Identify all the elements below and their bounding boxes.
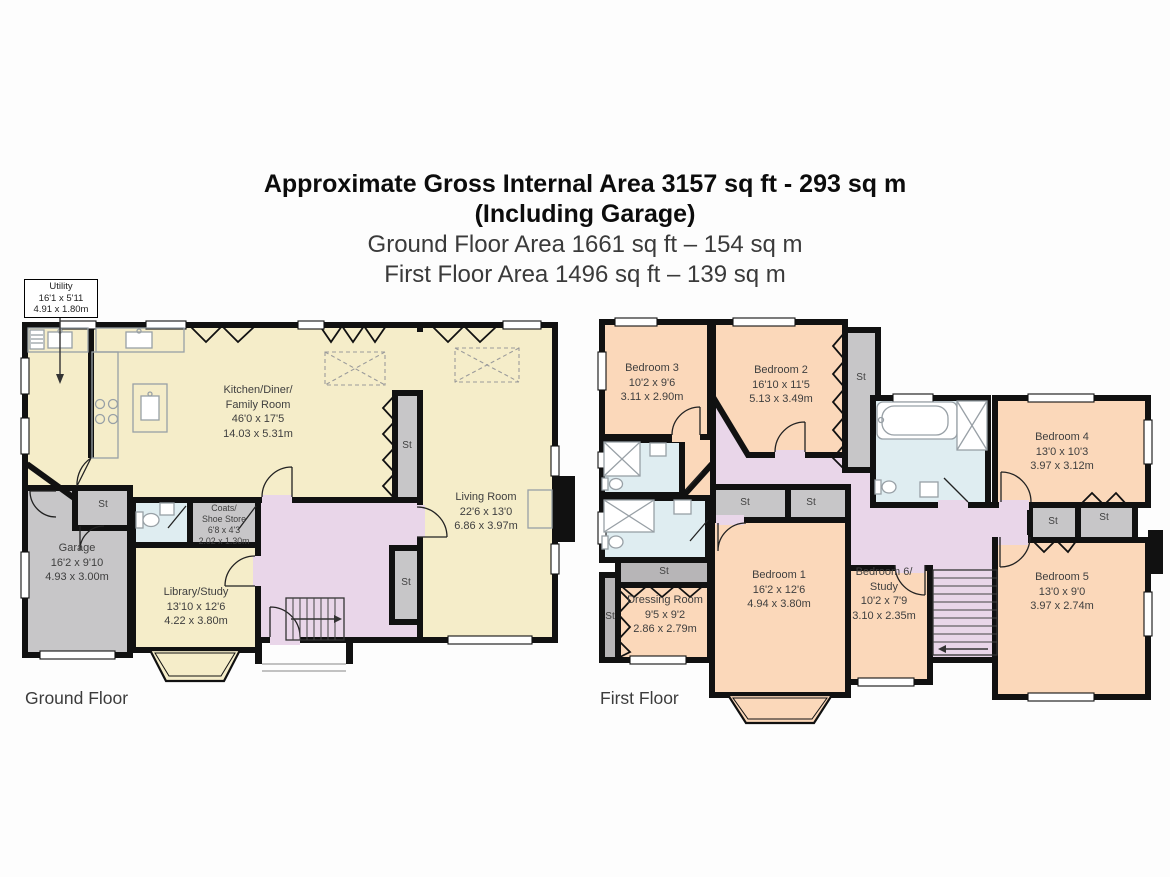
chimney [1148, 530, 1163, 574]
garage-label: Garage 16'2 x 9'10 4.93 x 3.00m [45, 541, 109, 585]
bath-icon [877, 402, 957, 439]
living-room-label: Living Room 22'6 x 13'0 6.86 x 3.97m [454, 490, 518, 534]
toilet-icon [875, 480, 896, 494]
window [1028, 693, 1094, 701]
window [21, 552, 29, 598]
window [551, 446, 559, 476]
storage-label: St [806, 498, 815, 508]
porch [255, 640, 353, 671]
storage-label: St [1099, 513, 1108, 523]
toilet-icon [602, 536, 623, 549]
library-study-label: Library/Study 13'10 x 12'6 4.22 x 3.80m [164, 585, 229, 629]
storage-label: St [98, 500, 107, 510]
window [893, 394, 933, 402]
storage-label: St [856, 373, 865, 383]
window [551, 544, 559, 574]
sink-icon [141, 396, 159, 420]
window [1028, 394, 1094, 402]
fireplace [553, 476, 575, 542]
storage-label: St [659, 567, 668, 577]
bedroom5-room [995, 540, 1148, 697]
storage-label: St [402, 441, 411, 451]
floorplan-drawing [0, 0, 1170, 877]
window [630, 656, 686, 664]
toilet-icon [136, 512, 143, 528]
utility-wall [88, 325, 94, 458]
bedroom4-label: Bedroom 4 13'0 x 10'3 3.97 x 3.12m [1030, 430, 1094, 474]
coats-store-label: Coats/ Shoe Store 6'8 x 4'3 2.02 x 1.30m [199, 503, 250, 547]
basin-icon [650, 443, 666, 456]
window [21, 358, 29, 394]
floorplan-page: Approximate Gross Internal Area 3157 sq … [0, 0, 1170, 877]
bedroom1-storage-right-room [788, 487, 848, 520]
window [615, 318, 657, 326]
window [598, 352, 606, 390]
bedroom1-label: Bedroom 1 16'2 x 12'6 4.94 x 3.80m [747, 568, 811, 612]
window [503, 321, 541, 329]
shower-icon [957, 401, 987, 450]
bedroom3-label: Bedroom 3 10'2 x 9'6 3.11 x 2.90m [621, 361, 684, 405]
sink-icon [126, 332, 152, 348]
storage-label: St [740, 498, 749, 508]
dressing-room-label: Dressing Room 9'5 x 9'2 2.86 x 2.79m [627, 593, 703, 637]
shower-icon [604, 442, 640, 476]
first-floor-label: First Floor [600, 688, 679, 709]
utility-label: Utility 16'1 x 5'11 4.91 x 1.80m [24, 279, 98, 318]
window [298, 321, 324, 329]
bedroom6-study-label: Bedroom 6/ Study 10'2 x 7'9 3.10 x 2.35m [852, 565, 916, 623]
window [448, 636, 532, 644]
storage-label: St [605, 612, 614, 622]
garage-door [40, 651, 115, 659]
ground-floor-label: Ground Floor [25, 688, 128, 709]
toilet-icon [602, 478, 623, 490]
window [1144, 592, 1152, 636]
basin-icon [674, 500, 691, 514]
basin-icon [160, 503, 174, 515]
window [733, 318, 795, 326]
storage-label: St [1048, 517, 1057, 527]
window [21, 418, 29, 454]
bedroom5-label: Bedroom 5 13'0 x 9'0 3.97 x 2.74m [1030, 570, 1094, 614]
storage-label: St [401, 578, 410, 588]
basin-icon [920, 482, 938, 497]
window [858, 678, 914, 686]
living-room [420, 325, 555, 640]
window [1144, 420, 1152, 464]
shower-icon [604, 500, 654, 532]
bedroom2-label: Bedroom 2 16'10 x 11'5 5.13 x 3.49m [749, 363, 813, 407]
kitchen-label: Kitchen/Diner/ Family Room 46'0 x 17'5 1… [223, 383, 293, 441]
